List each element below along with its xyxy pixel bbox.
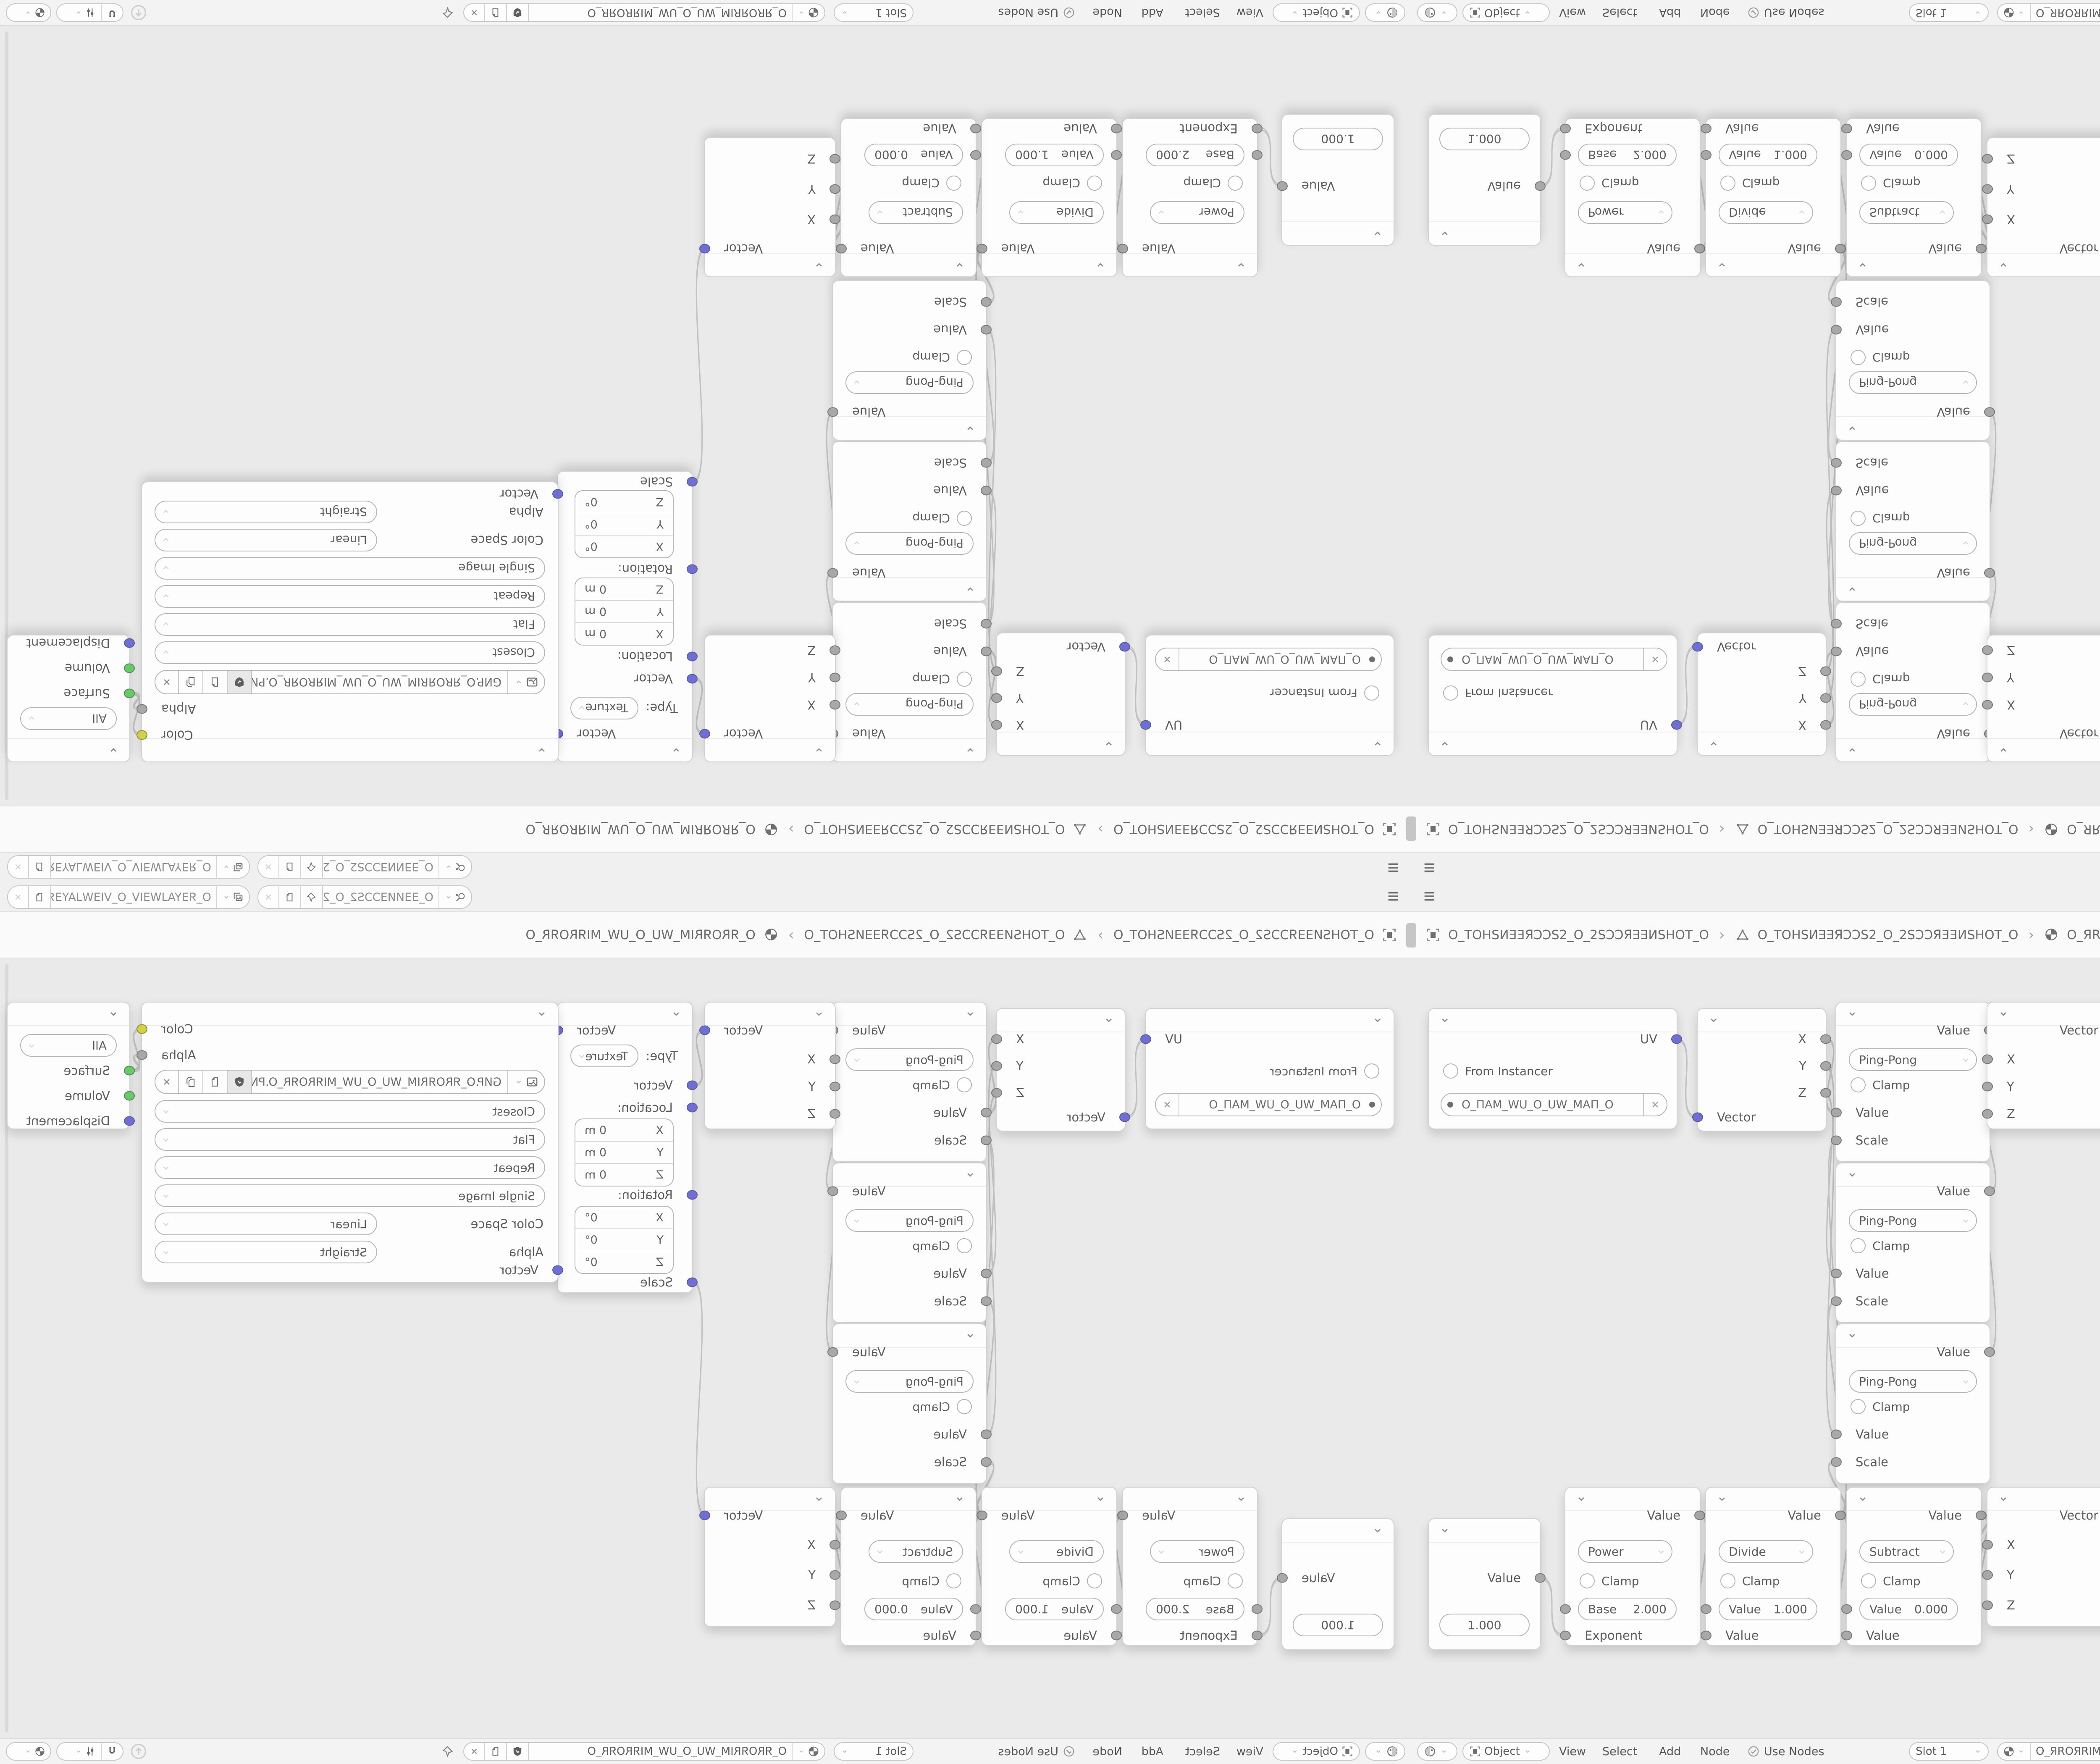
input-socket-scale[interactable] <box>1831 1457 1842 1467</box>
input-socket-vector[interactable] <box>687 674 698 684</box>
output-socket-value[interactable] <box>1535 181 1546 191</box>
view-layer-name-field[interactable]: O_ЯƎYA⅃WƎIV_O_VIƎW⅃AYƎЯ_O <box>50 856 216 878</box>
breadcrumb-scene[interactable]: O_TOHSͶƎƎЯƆƆS2_O_2SƆƆЯƎƎͶSHOT_O <box>1113 822 1374 837</box>
image-datablock-selector[interactable]: GИP.O_ЯROЯRIM_WU_O_UW_MIЯROЯR_O.PNG <box>155 1070 545 1094</box>
input-socket-volume[interactable] <box>124 1091 135 1101</box>
collapse-chevron-icon[interactable] <box>1372 228 1383 239</box>
output-socket-value[interactable] <box>1984 407 1995 417</box>
image-browse-button[interactable] <box>507 671 544 693</box>
node-math-divide[interactable]: ValueDivideClampValue1.000Value <box>981 118 1117 277</box>
input-socket-value[interactable] <box>981 647 992 656</box>
input-socket-value[interactable] <box>1831 1108 1842 1118</box>
node-math-divide[interactable]: ValueDivideClampValue1.000Value <box>1705 1487 1841 1646</box>
vector-field-stack[interactable]: X0 mY0 mZ0 m <box>575 577 674 646</box>
editor-type-button[interactable] <box>1365 1742 1405 1761</box>
image-name-field[interactable]: GИP.O_ЯROЯRIM_WU_O_UW_MIЯROЯR_O.PNG <box>251 671 507 693</box>
menu-add[interactable]: Add <box>1659 1739 1681 1764</box>
go-up-button[interactable] <box>129 3 148 22</box>
uv-map-clear-button[interactable] <box>1644 1094 1667 1116</box>
input-socket-scale[interactable] <box>687 1278 698 1287</box>
collapse-chevron-icon[interactable] <box>813 1008 825 1020</box>
use-nodes-checkbox[interactable]: Use Nodes <box>998 0 1075 25</box>
node-header[interactable] <box>1123 253 1257 276</box>
collapse-chevron-icon[interactable] <box>1998 1493 2009 1505</box>
uv-map-clear-button[interactable] <box>1156 1094 1179 1116</box>
node-uv-map[interactable]: UVFrom InstancerO_ПAM_WU_O_UW_MAП_O <box>1428 1008 1677 1129</box>
view-layer-unlink-button[interactable] <box>8 886 28 908</box>
node-uv-map[interactable]: UVFrom InstancerO_ПAM_WU_O_UW_MAП_O <box>1428 635 1677 756</box>
input-socket-scale[interactable] <box>981 458 992 468</box>
output-socket-x[interactable] <box>991 1034 1002 1044</box>
image-browse-button[interactable] <box>507 1071 544 1093</box>
node-combine-xyz-top[interactable]: VectorXYZ <box>704 1002 836 1129</box>
collapse-chevron-icon[interactable] <box>964 583 976 595</box>
node-header[interactable] <box>558 738 692 761</box>
node-header[interactable] <box>997 1009 1125 1032</box>
checkbox-clamp[interactable]: Clamp <box>1851 1077 1910 1092</box>
image-name-field[interactable]: GИP.O_ЯROЯRIM_WU_O_UW_MIЯROЯR_O.PNG <box>251 1071 507 1093</box>
view-layer-name-field[interactable]: O_ЯƎYA⅃WƎIV_O_VIƎW⅃AYƎЯ_O <box>50 886 216 908</box>
output-socket-y[interactable] <box>1820 1061 1831 1071</box>
node-header[interactable] <box>1706 253 1840 276</box>
checkbox-circle[interactable] <box>1851 350 1866 365</box>
output-socket-value[interactable] <box>1117 244 1128 254</box>
output-socket-value[interactable] <box>827 568 838 578</box>
output-socket-y[interactable] <box>1820 693 1831 703</box>
input-socket-vector[interactable] <box>1119 642 1130 652</box>
number-field-value[interactable]: Value1.000 <box>1719 1598 1817 1620</box>
output-socket-alpha[interactable] <box>136 1050 147 1060</box>
scene-browse-button[interactable] <box>438 856 471 878</box>
dropdown-ping-pong[interactable]: Ping-Pong <box>1849 1370 1977 1393</box>
collapse-chevron-icon[interactable] <box>964 1330 976 1341</box>
scene-name-field[interactable]: O_ƎƎИͶƎƆƆS2_O_2SƆƆЯƎƎИ... <box>322 886 438 908</box>
vector-field-row[interactable]: Y0° <box>575 513 673 535</box>
view-layer-unlink-button[interactable] <box>8 856 28 878</box>
output-socket-value[interactable] <box>1984 1186 1995 1196</box>
scene-name-field[interactable]: O_ƎƎИͶƎƆƆS2_O_2SƆƆЯƎƎИ... <box>322 856 438 878</box>
breadcrumb-material[interactable]: O_ЯROЯRIM_WU_O_UW_MIЯROЯR_O <box>2067 928 2100 942</box>
checkbox-clamp[interactable]: Clamp <box>1851 1238 1910 1253</box>
node-header[interactable] <box>841 253 976 276</box>
material-name-field[interactable]: O_ЯROЯRIM_WU_O_UW_MIЯROЯR_O <box>2031 1743 2100 1760</box>
menu-view[interactable]: View <box>1236 0 1263 25</box>
checkbox-clamp[interactable]: Clamp <box>1861 176 1921 191</box>
scene-pin-button[interactable] <box>300 856 322 878</box>
new-image-button[interactable] <box>202 671 227 693</box>
node-header[interactable] <box>833 577 986 601</box>
input-socket-z[interactable] <box>829 1109 840 1119</box>
input-socket-value[interactable] <box>1111 1604 1122 1614</box>
view-layer-copy-button[interactable] <box>28 886 50 908</box>
node-header[interactable] <box>997 732 1125 755</box>
node-combine-xyz-top[interactable]: VectorXYZ <box>1987 1002 2100 1129</box>
material-datablock-selector[interactable]: O_ЯROЯRIM_WU_O_UW_MIЯROЯR_O <box>1997 1742 2100 1761</box>
dropdown-subtract[interactable]: Subtract <box>1859 201 1954 224</box>
node-header[interactable] <box>1146 732 1394 755</box>
collapse-chevron-icon[interactable] <box>813 1493 825 1505</box>
input-socket-exponent[interactable] <box>1560 1631 1571 1641</box>
input-socket-value[interactable] <box>1831 1269 1842 1278</box>
menu-view[interactable]: View <box>1236 1739 1263 1764</box>
input-socket-volume[interactable] <box>124 664 135 673</box>
node-image-texture[interactable]: ColorAlphaGИP.O_ЯROЯRIM_WU_O_UW_MIЯROЯR_… <box>141 481 559 762</box>
collapse-chevron-icon[interactable] <box>954 259 966 271</box>
uv-map-clear-button[interactable] <box>1156 648 1179 670</box>
dropdown-single-image[interactable]: Single Image <box>155 1184 545 1207</box>
input-socket-y[interactable] <box>829 1570 840 1580</box>
input-socket-z[interactable] <box>829 1601 840 1610</box>
value-field[interactable]: 1.000 <box>1293 128 1383 150</box>
material-copy-button[interactable] <box>484 1743 506 1760</box>
number-field-value[interactable]: Value1.000 <box>1005 144 1104 166</box>
collapse-chevron-icon[interactable] <box>1095 259 1106 271</box>
output-socket-vector[interactable] <box>699 729 710 739</box>
node-header[interactable] <box>1836 416 1990 440</box>
node-math-ping-pong-3[interactable]: ValuePing-PongClampValueScale <box>832 280 987 441</box>
collapse-chevron-icon[interactable] <box>108 744 119 756</box>
snap-settings-group[interactable] <box>56 1742 123 1761</box>
checkbox-clamp[interactable]: Clamp <box>1183 176 1243 191</box>
node-separate-xyz[interactable]: XYZVector <box>1697 1008 1827 1131</box>
dropdown-ping-pong[interactable]: Ping-Pong <box>845 1048 974 1071</box>
menu-node[interactable]: Node <box>1700 0 1730 25</box>
snap-toggle-button[interactable] <box>101 4 123 21</box>
checkbox-circle[interactable] <box>957 511 972 526</box>
collapse-chevron-icon[interactable] <box>964 744 976 756</box>
view-layer-selector[interactable]: O_ЯƎYA⅃WƎIV_O_VIƎW⅃AYƎЯ_O <box>7 885 250 909</box>
breadcrumb-material[interactable]: O_ЯROЯRIM_WU_O_UW_MIЯROЯR_O <box>525 822 756 837</box>
checkbox-clamp[interactable]: Clamp <box>912 1238 972 1253</box>
input-socket-scale[interactable] <box>1831 619 1842 629</box>
mode-dropdown[interactable]: Object <box>1273 1742 1360 1761</box>
node-header[interactable] <box>705 253 835 276</box>
hamburger-menu-button[interactable] <box>1386 861 1400 875</box>
dropdown-subtract[interactable]: Subtract <box>1859 1540 1954 1563</box>
input-socket-displacement[interactable] <box>124 1116 135 1126</box>
checkbox-circle[interactable] <box>1851 1238 1866 1253</box>
editor-type-button[interactable] <box>1417 3 1457 22</box>
node-combine-xyz-top[interactable]: VectorXYZ <box>704 635 836 762</box>
checkbox-from-instancer[interactable]: From Instancer <box>1443 1063 1553 1079</box>
breadcrumb-scene[interactable]: O_TOHSͶƎƎЯƆƆS2_O_2SƆƆЯƎƎͶSHOT_O <box>1448 928 1709 942</box>
input-socket-scale[interactable] <box>1831 1136 1842 1145</box>
collapse-chevron-icon[interactable] <box>1998 1008 2009 1020</box>
node-header[interactable] <box>1836 577 1990 601</box>
collapse-chevron-icon[interactable] <box>536 1008 548 1020</box>
material-name-field[interactable]: O_ЯROЯRIM_WU_O_UW_MIЯROЯR_O <box>528 1743 792 1760</box>
input-socket-vector[interactable] <box>552 1265 563 1275</box>
breadcrumb-object[interactable]: O_TOHSͶƎƎЯƆƆS2_O_2SƆƆЯƎƎͶSHOT_O <box>804 928 1065 942</box>
node-mapping[interactable]: VectorType:TextureVectorLocation:X0 mY0 … <box>557 1002 693 1293</box>
unlink-image-button[interactable] <box>155 671 178 693</box>
view-layer-browse-button[interactable] <box>216 856 249 878</box>
input-socket-x[interactable] <box>829 215 840 224</box>
node-mapping[interactable]: VectorType:TextureVectorLocation:X0 mY0 … <box>557 471 693 762</box>
node-math-ping-pong-2[interactable]: ValuePing-PongClampValueScale <box>1835 441 1990 601</box>
input-socket-y[interactable] <box>1982 184 1993 194</box>
dropdown-texture[interactable]: Texture <box>570 1045 638 1067</box>
number-field-base[interactable]: Base2.000 <box>1146 1598 1244 1620</box>
mode-dropdown[interactable]: Object <box>1273 3 1360 22</box>
checkbox-circle[interactable] <box>957 672 972 687</box>
output-socket-uv[interactable] <box>1671 1034 1682 1044</box>
output-socket-color[interactable] <box>136 1024 147 1034</box>
checkbox-clamp[interactable]: Clamp <box>912 350 972 365</box>
input-socket-value[interactable] <box>970 1631 981 1641</box>
node-math-ping-pong-3[interactable]: ValuePing-PongClampValueScale <box>832 1323 987 1484</box>
output-socket-uv[interactable] <box>1140 720 1151 730</box>
output-socket-vector[interactable] <box>699 1026 710 1035</box>
output-socket-value[interactable] <box>1277 181 1288 191</box>
pin-button[interactable] <box>442 1739 454 1764</box>
menu-select[interactable]: Select <box>1185 1739 1220 1764</box>
node-combine-xyz-bottom[interactable]: VectorXYZ <box>704 1487 836 1627</box>
dropdown-subtract[interactable]: Subtract <box>869 201 963 224</box>
output-socket-value[interactable] <box>1976 244 1987 254</box>
checkbox-clamp[interactable]: Clamp <box>1861 1573 1921 1588</box>
output-socket-value[interactable] <box>1694 244 1705 254</box>
material-fake-user-button[interactable] <box>506 4 528 21</box>
node-header[interactable] <box>1698 1009 1826 1032</box>
dropdown-repeat[interactable]: Repeat <box>155 1156 545 1179</box>
menu-add[interactable]: Add <box>1142 1739 1163 1764</box>
go-up-button[interactable] <box>129 1742 148 1761</box>
output-socket-value[interactable] <box>1984 568 1995 578</box>
node-math-ping-pong-2[interactable]: ValuePing-PongClampValueScale <box>1835 1163 1990 1323</box>
material-fake-user-button[interactable] <box>506 1743 528 1760</box>
material-browse-button[interactable] <box>792 1743 824 1760</box>
node-math-subtract[interactable]: ValueSubtractClampValue0.000Value <box>840 118 976 277</box>
input-socket-value[interactable] <box>981 1430 992 1439</box>
checkbox-clamp[interactable]: Clamp <box>1580 176 1639 191</box>
region-handle[interactable] <box>1406 923 1411 948</box>
snap-options-dropdown[interactable] <box>70 1743 101 1760</box>
dropdown-ping-pong[interactable]: Ping-Pong <box>1849 693 1977 716</box>
node-canvas[interactable]: UVFrom InstancerO_ПAM_WU_O_UW_MAП_OXYZVe… <box>0 882 1411 1764</box>
node-header[interactable] <box>833 416 986 440</box>
checkbox-circle[interactable] <box>1720 1573 1735 1588</box>
collapse-chevron-icon[interactable] <box>1235 1493 1247 1505</box>
input-socket-z[interactable] <box>1982 1601 1993 1610</box>
output-socket-value[interactable] <box>827 1186 838 1196</box>
input-socket-value[interactable] <box>1701 1604 1711 1614</box>
node-math-power[interactable]: ValuePowerClampBase2.000Exponent <box>1564 1487 1701 1646</box>
output-socket-x[interactable] <box>991 720 1002 730</box>
node-value[interactable]: Value1.000 <box>1428 114 1541 246</box>
editor-type-button[interactable] <box>1417 1742 1457 1761</box>
node-header[interactable] <box>1565 253 1700 276</box>
output-socket-value[interactable] <box>1277 1573 1288 1583</box>
uv-map-name-field[interactable]: O_ПAM_WU_O_UW_MAП_O <box>1179 1094 1381 1116</box>
input-socket-base[interactable] <box>1560 1604 1571 1614</box>
collapse-chevron-icon[interactable] <box>1716 259 1728 271</box>
snap-settings-group[interactable] <box>56 3 123 22</box>
input-socket-x[interactable] <box>1982 215 1993 224</box>
region-handle[interactable] <box>1411 816 1416 841</box>
dropdown-linear[interactable]: Linear <box>155 529 377 551</box>
checkbox-circle[interactable] <box>1364 685 1379 701</box>
collapse-chevron-icon[interactable] <box>1095 1493 1106 1505</box>
dropdown-power[interactable]: Power <box>1578 201 1672 224</box>
collapse-chevron-icon[interactable] <box>1708 738 1719 750</box>
mode-dropdown[interactable]: Object <box>1462 3 1550 22</box>
collapse-chevron-icon[interactable] <box>1439 1014 1451 1026</box>
slot-dropdown[interactable]: Slot 1 <box>1909 3 1989 22</box>
uv-map-clear-button[interactable] <box>1644 648 1667 670</box>
collapse-chevron-icon[interactable] <box>1846 1330 1858 1341</box>
collapse-chevron-icon[interactable] <box>1846 1008 1858 1020</box>
collapse-chevron-icon[interactable] <box>1846 583 1858 595</box>
collapse-chevron-icon[interactable] <box>1235 259 1247 271</box>
node-math-divide[interactable]: ValueDivideClampValue1.000Value <box>981 1487 1117 1646</box>
input-socket-x[interactable] <box>829 1540 840 1550</box>
scene-browse-button[interactable] <box>438 886 471 908</box>
collapse-chevron-icon[interactable] <box>1857 1493 1869 1505</box>
node-header[interactable] <box>1429 1519 1540 1543</box>
value-field[interactable]: 1.000 <box>1439 1614 1530 1636</box>
use-nodes-checkbox[interactable]: Use Nodes <box>998 1739 1075 1764</box>
breadcrumb-scene[interactable]: O_TOHSͶƎƎЯƆƆS2_O_2SƆƆЯƎƎͶSHOT_O <box>1113 928 1374 942</box>
input-socket-value[interactable] <box>1831 325 1842 335</box>
checkbox-circle[interactable] <box>946 1573 961 1588</box>
node-math-ping-pong-1[interactable]: ValuePing-PongClampValueScale <box>832 1002 987 1162</box>
fake-user-button[interactable] <box>227 671 251 693</box>
node-math-ping-pong-2[interactable]: ValuePing-PongClampValueScale <box>832 1163 987 1323</box>
input-socket-value[interactable] <box>981 325 992 335</box>
dropdown-closest[interactable]: Closest <box>155 1100 545 1123</box>
checkbox-clamp[interactable]: Clamp <box>912 1399 972 1414</box>
view-layer-browse-button[interactable] <box>216 886 249 908</box>
snap-toggle-button[interactable] <box>101 1743 123 1760</box>
vector-field-row[interactable]: Z0° <box>575 1251 673 1273</box>
checkbox-clamp[interactable]: Clamp <box>1851 672 1910 687</box>
menu-add[interactable]: Add <box>1142 0 1163 25</box>
node-math-ping-pong-1[interactable]: ValuePing-PongClampValueScale <box>1835 602 1990 762</box>
input-socket-z[interactable] <box>829 646 840 655</box>
node-header[interactable] <box>1429 1009 1677 1032</box>
node-header[interactable] <box>8 738 129 761</box>
collapse-chevron-icon[interactable] <box>1846 1169 1858 1181</box>
input-socket-location[interactable] <box>687 652 698 661</box>
node-header[interactable] <box>1146 1009 1394 1032</box>
output-socket-value[interactable] <box>1117 1511 1128 1520</box>
node-header[interactable] <box>1987 253 2100 276</box>
region-handle[interactable] <box>1406 816 1411 841</box>
region-handle[interactable] <box>1411 923 1416 948</box>
dropdown-divide[interactable]: Divide <box>1009 201 1104 224</box>
output-socket-value[interactable] <box>1976 1511 1987 1520</box>
node-math-ping-pong-1[interactable]: ValuePing-PongClampValueScale <box>832 602 987 762</box>
collapse-chevron-icon[interactable] <box>1716 1493 1728 1505</box>
collapse-chevron-icon[interactable] <box>964 1169 976 1181</box>
material-unlink-button[interactable] <box>464 1743 484 1760</box>
material-copy-button[interactable] <box>484 4 506 21</box>
dropdown-all[interactable]: All <box>20 707 117 730</box>
checkbox-circle[interactable] <box>1861 176 1876 191</box>
collapse-chevron-icon[interactable] <box>536 744 548 756</box>
menu-select[interactable]: Select <box>1185 0 1220 25</box>
node-math-divide[interactable]: ValueDivideClampValue1.000Value <box>1705 118 1841 277</box>
unlink-image-button[interactable] <box>155 1071 178 1093</box>
output-socket-z[interactable] <box>991 1088 1002 1098</box>
input-socket-scale[interactable] <box>981 1297 992 1306</box>
input-socket-vector[interactable] <box>552 489 563 499</box>
output-socket-value[interactable] <box>976 1511 987 1520</box>
output-socket-value[interactable] <box>1835 1511 1846 1520</box>
node-math-power[interactable]: ValuePowerClampBase2.000Exponent <box>1122 118 1258 277</box>
node-separate-xyz[interactable]: XYZVector <box>996 1008 1126 1131</box>
node-canvas[interactable]: UVFrom InstancerO_ПAM_WU_O_UW_MAП_OXYZVe… <box>1411 882 2100 1764</box>
input-socket-displacement[interactable] <box>124 638 135 648</box>
collapse-chevron-icon[interactable] <box>1575 1493 1587 1505</box>
collapse-chevron-icon[interactable] <box>1439 228 1451 239</box>
collapse-chevron-icon[interactable] <box>670 1008 682 1020</box>
node-header[interactable] <box>705 738 835 761</box>
vector-field-stack[interactable]: X0 mY0 mZ0 m <box>575 1118 674 1186</box>
material-browse-button[interactable] <box>1998 1743 2031 1760</box>
node-math-ping-pong-1[interactable]: ValuePing-PongClampValueScale <box>1835 1002 1990 1162</box>
checkbox-circle[interactable] <box>1443 1063 1458 1079</box>
hamburger-menu-button[interactable] <box>1422 861 1436 875</box>
collapse-chevron-icon[interactable] <box>108 1008 119 1020</box>
output-socket-x[interactable] <box>1820 720 1831 730</box>
collapse-chevron-icon[interactable] <box>813 259 825 271</box>
output-socket-value[interactable] <box>1535 1573 1546 1583</box>
collapse-chevron-icon[interactable] <box>1575 259 1587 271</box>
input-socket-z[interactable] <box>1982 1109 1993 1119</box>
node-math-subtract[interactable]: ValueSubtractClampValue0.000Value <box>1846 1487 1982 1646</box>
node-header[interactable] <box>142 738 558 761</box>
input-socket-value[interactable] <box>1701 124 1711 134</box>
input-socket-value[interactable] <box>1831 486 1842 496</box>
dropdown-straight[interactable]: Straight <box>155 501 377 523</box>
scene-unlink-button[interactable] <box>258 856 278 878</box>
menu-select[interactable]: Select <box>1602 0 1637 25</box>
node-combine-xyz-bottom[interactable]: VectorXYZ <box>704 137 836 277</box>
output-socket-vector[interactable] <box>699 1511 710 1520</box>
output-socket-value[interactable] <box>1835 244 1846 254</box>
checkbox-circle[interactable] <box>1851 1399 1866 1414</box>
copy-image-button[interactable] <box>178 1071 202 1093</box>
material-browse-button[interactable] <box>792 4 824 21</box>
input-socket-y[interactable] <box>829 184 840 194</box>
value-field[interactable]: 1.000 <box>1439 128 1530 150</box>
collapse-chevron-icon[interactable] <box>964 1008 976 1020</box>
vector-field-row[interactable]: Z0° <box>575 491 673 513</box>
material-browse-button[interactable] <box>1998 4 2031 21</box>
input-socket-vector[interactable] <box>1692 642 1703 652</box>
breadcrumb-object[interactable]: O_TOHSͶƎƎЯƆƆS2_O_2SƆƆЯƎƎͶSHOT_O <box>1758 822 2019 837</box>
dropdown-flat[interactable]: Flat <box>155 1128 545 1151</box>
input-socket-scale[interactable] <box>981 297 992 307</box>
checkbox-circle[interactable] <box>1087 176 1102 191</box>
input-socket-value[interactable] <box>1111 150 1122 160</box>
dropdown-straight[interactable]: Straight <box>155 1241 377 1263</box>
vector-field-row[interactable]: Z0 m <box>575 578 673 600</box>
checkbox-clamp[interactable]: Clamp <box>1042 176 1102 191</box>
hamburger-menu-button[interactable] <box>1422 889 1436 903</box>
view-layer-copy-button[interactable] <box>28 856 50 878</box>
use-nodes-checkbox[interactable]: Use Nodes <box>1747 0 1824 25</box>
menu-view[interactable]: View <box>1559 1739 1586 1764</box>
collapse-chevron-icon[interactable] <box>1372 1525 1383 1536</box>
node-header[interactable] <box>1282 1519 1394 1543</box>
input-socket-x[interactable] <box>1982 700 1993 710</box>
node-image-texture[interactable]: ColorAlphaGИP.O_ЯROЯRIM_WU_O_UW_MIЯROЯR_… <box>141 1002 559 1283</box>
input-socket-value[interactable] <box>970 1604 981 1614</box>
input-socket-vector[interactable] <box>687 1081 698 1090</box>
